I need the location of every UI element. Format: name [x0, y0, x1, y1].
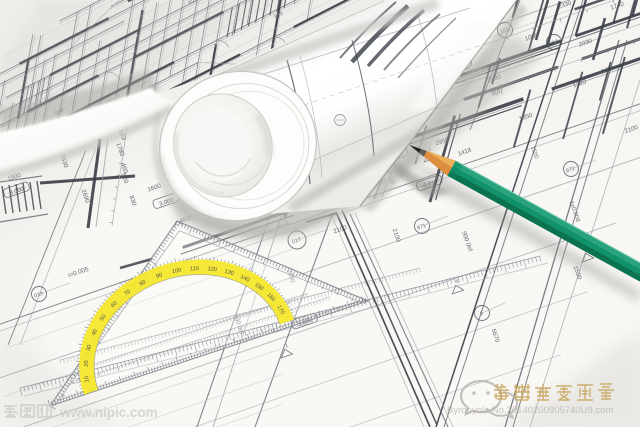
svg-text:110: 110	[190, 266, 199, 272]
svg-text:www.nipic.com: www.nipic.com	[59, 405, 158, 420]
svg-text:10: 10	[84, 376, 91, 383]
svg-text:20: 20	[84, 360, 90, 367]
svg-text:Byronyola No.20140200905740U9: Byronyola No.20140200905740U9.com	[447, 405, 613, 416]
svg-text:120: 120	[207, 266, 217, 273]
